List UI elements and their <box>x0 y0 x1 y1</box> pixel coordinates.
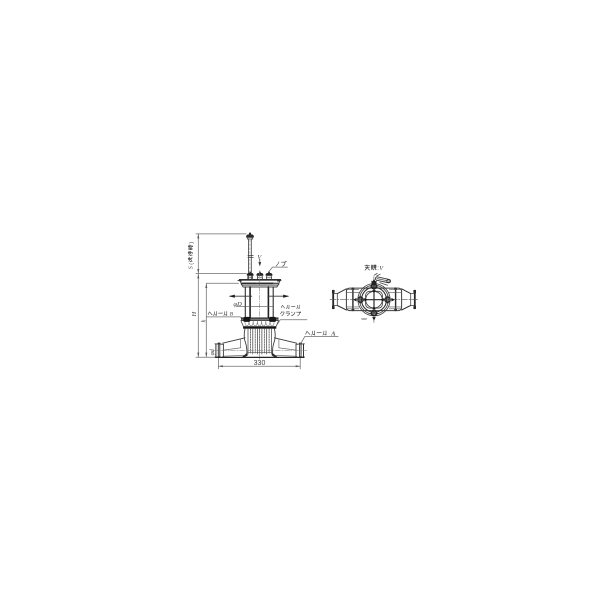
svg-text:330: 330 <box>254 360 266 367</box>
svg-text:H: H <box>191 312 198 318</box>
svg-text:φd: φd <box>210 348 216 355</box>
svg-text:S: S <box>189 266 195 269</box>
svg-text:): ) <box>189 242 195 244</box>
svg-text:V: V <box>379 265 384 272</box>
svg-text:h: h <box>201 320 207 323</box>
svg-text:(: ( <box>189 263 195 265</box>
